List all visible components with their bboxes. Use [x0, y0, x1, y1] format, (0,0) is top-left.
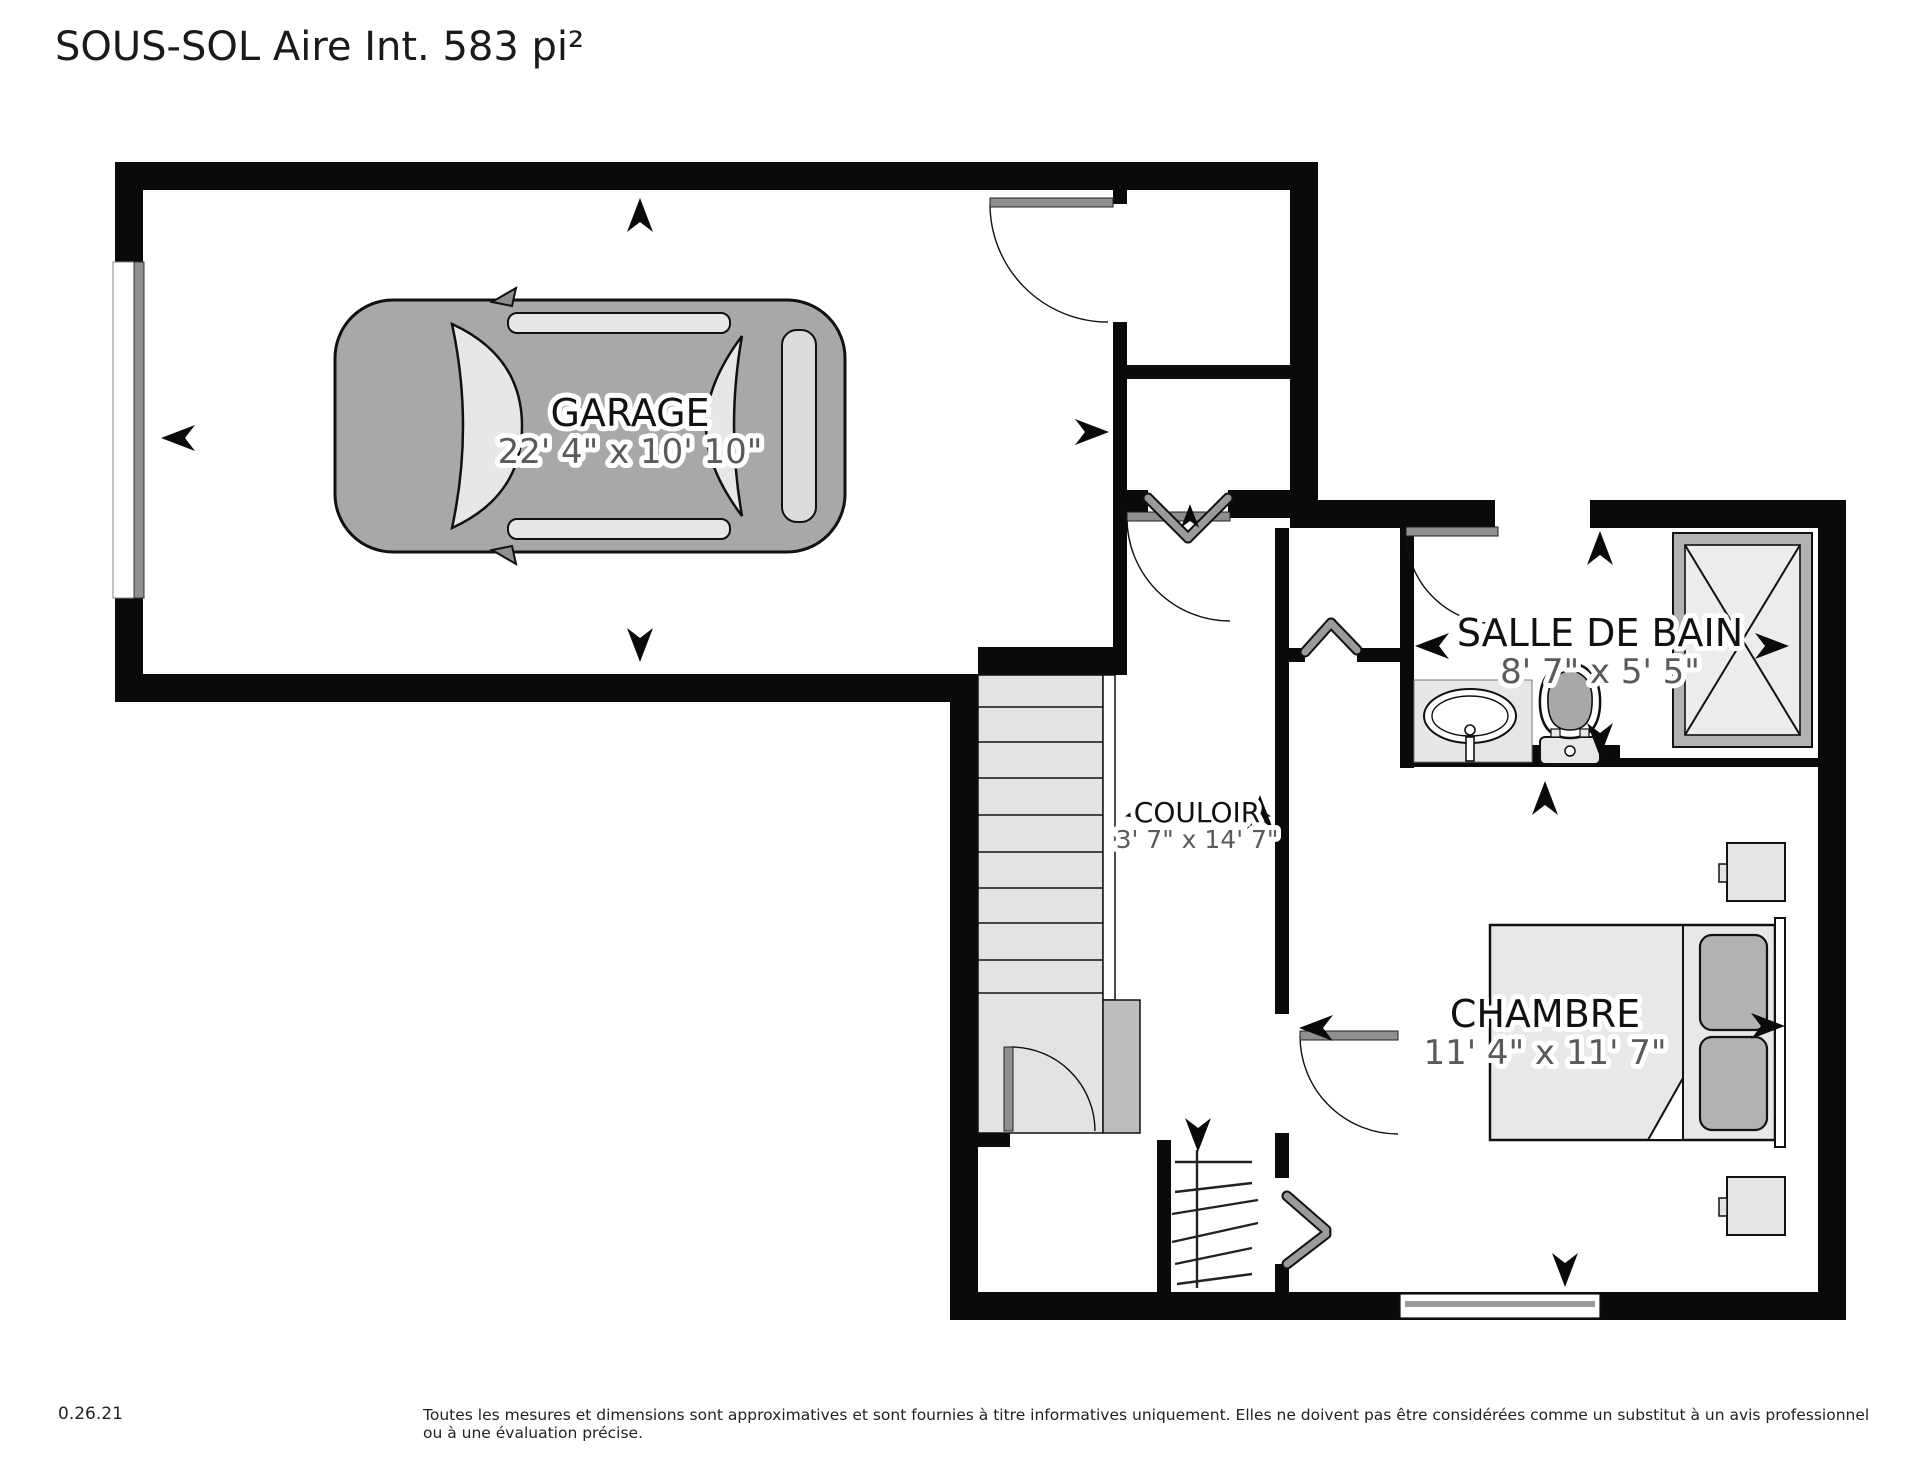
- arrow-up-icon: [627, 198, 653, 232]
- garage-door-opening: [113, 262, 135, 598]
- arrow-right-icon: [1075, 419, 1109, 445]
- garage-label: GARAGE: [550, 391, 709, 435]
- wall-seg: [1113, 190, 1127, 204]
- salle-de-bain-label: SALLE DE BAIN: [1457, 611, 1743, 655]
- staircase: [978, 675, 1140, 1133]
- wall-seg: [1275, 1133, 1289, 1178]
- wall-bath-bottom-thin: [1620, 758, 1818, 767]
- arrow-left-icon: [161, 425, 195, 451]
- toilet-hinge: [1551, 729, 1560, 737]
- garage-dims: 22' 4" x 10' 10": [498, 432, 763, 472]
- nightstand: [1727, 843, 1785, 901]
- bifold-couloir-closet: [1331, 623, 1357, 650]
- hatch-line: [1172, 1223, 1258, 1242]
- wall-garage-bottom: [115, 674, 985, 702]
- chambre-dims: 11' 4" x 11' 7": [1423, 1033, 1666, 1073]
- wall-right: [1818, 500, 1846, 1320]
- wall-seg: [1228, 490, 1290, 518]
- footer-disclaimer: Toutes les mesures et dimensions sont ap…: [423, 1406, 1893, 1442]
- wall-bottom: [950, 1292, 1846, 1320]
- wall-closet-divider: [1113, 365, 1290, 379]
- wall-bath-top-right: [1590, 500, 1846, 528]
- nightstand-knob: [1719, 864, 1727, 882]
- floorplan-drawing: GARAGE 22' 4" x 10' 10" SALLE DE BAIN 8'…: [0, 0, 1920, 1483]
- couloir-dims: 3' 7" x 14' 7": [1116, 825, 1279, 854]
- arrow-down-icon: [627, 628, 653, 662]
- toilet-hinge: [1580, 729, 1589, 737]
- nightstand: [1727, 1177, 1785, 1235]
- garage-door-panel: [134, 262, 144, 598]
- car-mirror: [492, 288, 516, 306]
- door-arc-closet-top: [990, 204, 1108, 322]
- stair-rail: [1103, 675, 1115, 1000]
- wall-stairs-top: [978, 647, 1127, 675]
- wall-mid-left: [950, 674, 978, 1320]
- floorplan-page: SOUS-SOL Aire Int. 583 pi²: [0, 0, 1920, 1483]
- sink-drain: [1465, 725, 1475, 735]
- wall-bath-top-left: [1290, 500, 1495, 528]
- chambre-label: CHAMBRE: [1450, 992, 1640, 1036]
- wall-seg: [1357, 648, 1400, 662]
- car-trunk: [782, 330, 816, 522]
- hatch-line: [1177, 1274, 1252, 1284]
- door-arc-chambre: [1300, 1036, 1398, 1134]
- shaft-hatch: [1172, 1150, 1258, 1288]
- hatch-line: [1175, 1248, 1252, 1264]
- wall-top: [115, 162, 1318, 190]
- wall-garage-left-top: [115, 162, 143, 262]
- wall-couloir-right: [1275, 528, 1289, 1014]
- window-glass-line: [1405, 1301, 1595, 1307]
- faucet: [1466, 737, 1474, 761]
- nightstand-knob: [1719, 1198, 1727, 1216]
- arrow-down-icon: [1185, 1118, 1211, 1152]
- salle-de-bain-dims: 8' 7" x 5' 5": [1500, 652, 1700, 692]
- bifold-doors: [1148, 498, 1357, 1264]
- bifold-chambre: [1287, 1196, 1326, 1230]
- garage-door: [113, 262, 144, 598]
- car-window-strip: [508, 313, 730, 333]
- bifold-couloir-closet: [1305, 623, 1331, 652]
- understairs-block: [1103, 1000, 1140, 1133]
- footer-version: 0.26.21: [58, 1404, 123, 1424]
- door-leaf-closet-top: [990, 198, 1113, 207]
- car-mirror: [492, 546, 516, 564]
- door-leaf-landing: [1004, 1047, 1013, 1131]
- toilet-flush: [1565, 746, 1575, 756]
- wall-seg: [978, 1133, 1010, 1147]
- stairs-floor: [978, 675, 1103, 1133]
- wall-bottomroom-right: [1157, 1140, 1171, 1292]
- hatch-line: [1175, 1183, 1252, 1192]
- wall-garage-left-bottom: [115, 598, 143, 702]
- door-leaf-bathroom: [1406, 527, 1498, 536]
- pillow: [1700, 1037, 1767, 1130]
- arrow-down-icon: [1552, 1253, 1578, 1287]
- headboard: [1775, 918, 1785, 1147]
- arrow-up-icon: [1587, 531, 1613, 565]
- wall-topright: [1290, 162, 1318, 528]
- car-window-strip: [508, 519, 730, 539]
- arrow-left-icon: [1415, 633, 1449, 659]
- arrow-up-icon: [1532, 781, 1558, 815]
- bifold-chambre: [1287, 1234, 1326, 1264]
- window-chambre: [1400, 1294, 1600, 1318]
- hatch-line: [1172, 1200, 1258, 1214]
